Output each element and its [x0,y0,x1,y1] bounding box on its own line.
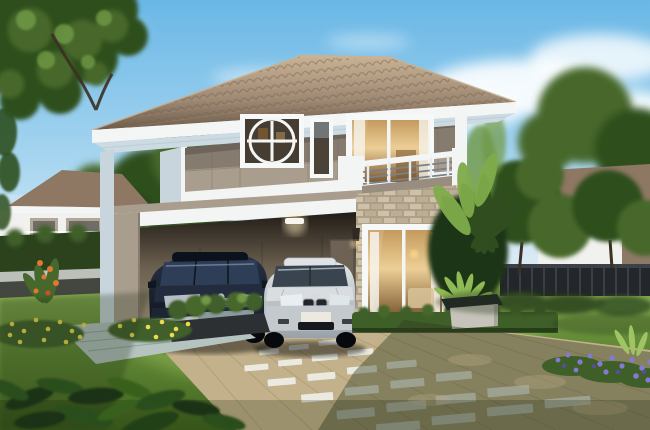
architectural-rendering [0,0,650,430]
circle-window [240,114,304,168]
carport-ceiling-light [285,218,304,224]
slim-window [310,118,333,178]
